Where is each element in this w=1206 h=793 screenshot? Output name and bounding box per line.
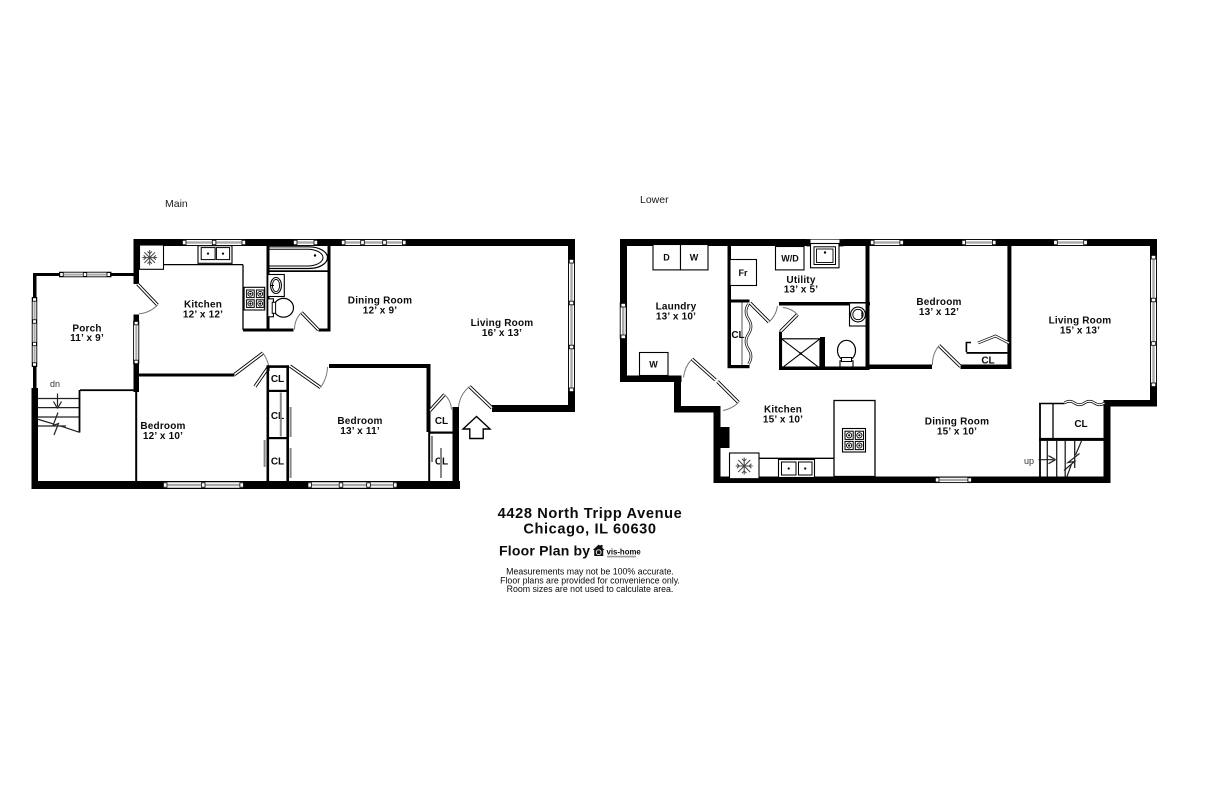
svg-text:up: up bbox=[1024, 456, 1034, 466]
svg-text:CL: CL bbox=[435, 416, 448, 427]
svg-text:12’ x 10’: 12’ x 10’ bbox=[143, 431, 183, 442]
svg-text:Floor Plan by: Floor Plan by bbox=[499, 543, 590, 559]
svg-text:vis-home: vis-home bbox=[607, 548, 642, 557]
svg-text:Chicago, IL 60630: Chicago, IL 60630 bbox=[523, 521, 656, 537]
svg-text:15’ x 10’: 15’ x 10’ bbox=[937, 427, 977, 438]
svg-text:CL: CL bbox=[731, 330, 744, 341]
svg-text:13’ x 10’: 13’ x 10’ bbox=[656, 312, 696, 323]
svg-text:dn: dn bbox=[50, 379, 60, 389]
svg-text:CL: CL bbox=[1074, 419, 1087, 430]
svg-text:12’ x 9’: 12’ x 9’ bbox=[363, 306, 397, 317]
svg-text:D: D bbox=[663, 253, 670, 263]
svg-text:CL: CL bbox=[271, 411, 284, 422]
svg-text:W/D: W/D bbox=[781, 254, 799, 264]
svg-text:CL: CL bbox=[981, 356, 994, 367]
svg-text:15’ x 10’: 15’ x 10’ bbox=[763, 415, 803, 426]
svg-text:15’ x 13’: 15’ x 13’ bbox=[1060, 326, 1100, 337]
svg-text:12’ x 12’: 12’ x 12’ bbox=[183, 310, 223, 321]
svg-text:Fr: Fr bbox=[739, 268, 748, 278]
svg-text:CL: CL bbox=[271, 457, 284, 468]
svg-text:Main: Main bbox=[165, 198, 188, 210]
svg-text:Room sizes are not used to cal: Room sizes are not used to calculate are… bbox=[507, 584, 674, 594]
svg-text:W: W bbox=[649, 360, 658, 370]
svg-text:11’ x 9’: 11’ x 9’ bbox=[70, 333, 104, 344]
svg-text:Lower: Lower bbox=[640, 194, 669, 206]
svg-text:W: W bbox=[690, 253, 699, 263]
svg-text:CL: CL bbox=[271, 374, 284, 385]
svg-text:13’ x 5’: 13’ x 5’ bbox=[784, 285, 818, 296]
svg-text:13’ x 12’: 13’ x 12’ bbox=[919, 307, 959, 318]
svg-text:16’ x 13’: 16’ x 13’ bbox=[482, 328, 522, 339]
svg-text:4428 North Tripp Avenue: 4428 North Tripp Avenue bbox=[498, 506, 683, 522]
svg-text:13’ x 11’: 13’ x 11’ bbox=[340, 426, 380, 437]
